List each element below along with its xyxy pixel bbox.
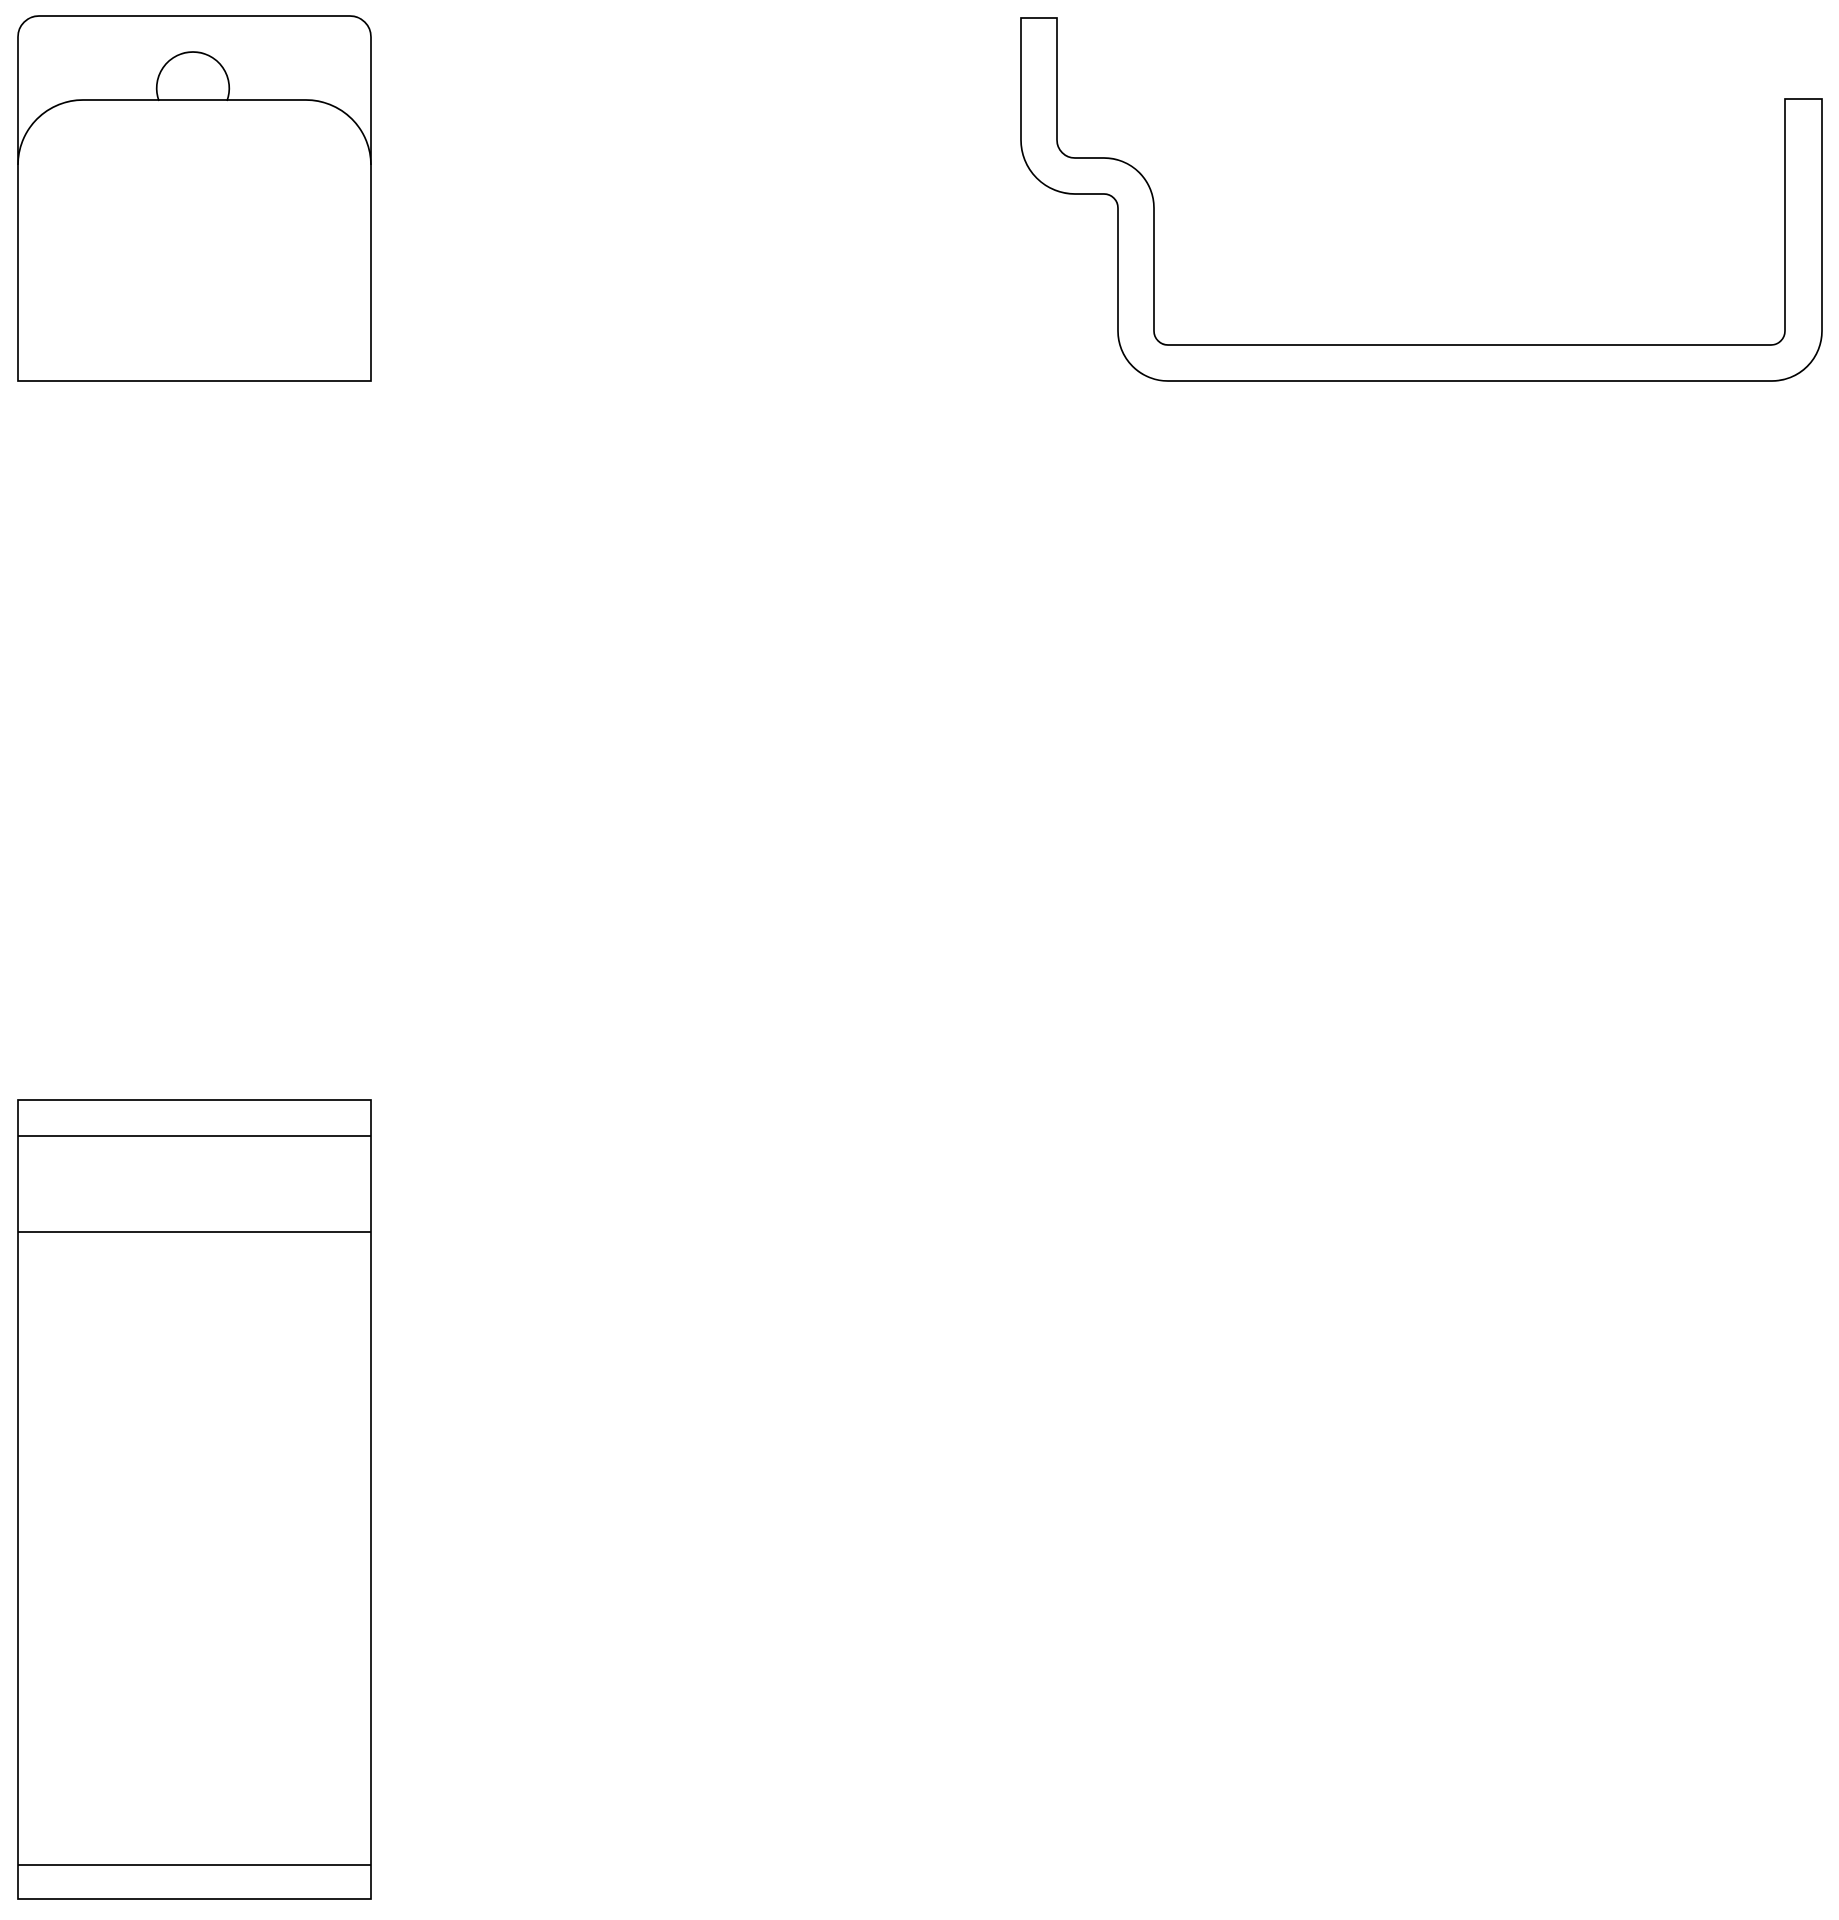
flap-fold-line xyxy=(18,100,371,165)
cad-drawing-svg xyxy=(0,0,1839,1920)
plate-outline xyxy=(18,1100,371,1899)
hang-tab-front-view xyxy=(18,16,371,381)
drawing-canvas xyxy=(0,0,1839,1920)
notch-arc xyxy=(157,52,230,101)
pad-outline xyxy=(18,16,371,381)
bracket-profile-view xyxy=(1021,18,1822,381)
profile-outline xyxy=(1021,18,1822,381)
plate-side-view xyxy=(18,1100,371,1899)
